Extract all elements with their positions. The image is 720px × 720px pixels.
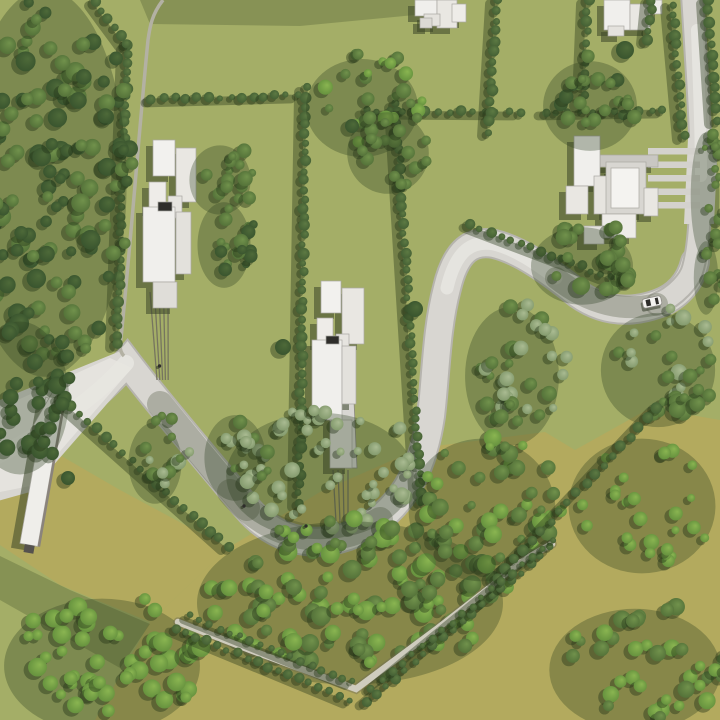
tree — [44, 421, 57, 434]
hedge-bush — [492, 6, 501, 15]
hedge-bush — [507, 237, 514, 244]
hedge-bush — [227, 631, 233, 637]
tree — [357, 145, 368, 156]
tree — [511, 507, 527, 523]
hedge-bush — [270, 90, 279, 99]
hedge-bush — [300, 186, 308, 194]
hedge-bush — [626, 433, 635, 442]
hedge-bush — [298, 316, 306, 324]
tree — [11, 244, 24, 257]
tree — [522, 404, 532, 414]
hedge-bush — [584, 27, 591, 34]
tree — [537, 506, 545, 514]
hedge-bush — [672, 50, 679, 57]
hedge-bush — [488, 58, 496, 66]
tree — [264, 503, 279, 518]
hedge-bush — [642, 412, 653, 423]
hedge-bush — [298, 219, 309, 230]
hedge-bush — [488, 45, 499, 56]
tree — [704, 204, 713, 213]
building-block — [342, 346, 356, 404]
tree — [233, 415, 247, 429]
tree — [622, 98, 634, 110]
hedge-bush — [420, 651, 426, 657]
building-block — [153, 282, 177, 308]
hedge-bush — [487, 66, 497, 76]
hedge-bush — [615, 440, 626, 451]
tree — [610, 490, 621, 501]
tree — [561, 111, 576, 126]
tree — [683, 369, 698, 384]
hedge-bush — [123, 68, 131, 76]
hedge-bush — [403, 294, 410, 301]
hedge-bush — [300, 155, 311, 166]
hedge-bush — [92, 422, 103, 433]
tree — [1, 154, 15, 168]
hedge-bush — [217, 95, 223, 101]
hedge-bush — [582, 8, 590, 16]
tree — [441, 449, 449, 457]
building-block — [415, 0, 437, 16]
hedge-bush — [487, 84, 499, 96]
tree — [98, 94, 115, 111]
tree — [572, 277, 590, 295]
hedge-bush — [122, 39, 131, 48]
tree — [494, 409, 509, 424]
slab-foot — [23, 544, 34, 554]
hedge-bush — [405, 338, 415, 348]
tree — [368, 442, 381, 455]
building-block — [644, 188, 658, 216]
hedge-bush — [214, 533, 223, 542]
tree — [650, 330, 661, 341]
tree — [687, 521, 701, 535]
tree — [116, 83, 132, 99]
hedge-bush — [259, 93, 268, 102]
hedge-bush — [412, 415, 420, 423]
hedge-bush — [485, 97, 495, 107]
tree — [401, 146, 414, 159]
hedge-bush — [672, 60, 681, 69]
tree — [566, 649, 580, 663]
tree — [97, 108, 112, 123]
hedge-bush — [338, 675, 346, 683]
tree — [539, 323, 552, 336]
hedge-bush — [111, 313, 122, 324]
tree — [392, 565, 408, 581]
tree — [257, 471, 267, 481]
tree — [167, 673, 186, 692]
hedge-bush — [298, 286, 307, 295]
tree — [698, 320, 712, 334]
hedge-bush — [670, 2, 677, 9]
tree — [325, 480, 335, 490]
hedge-bush — [237, 93, 247, 103]
hedge-bush — [336, 692, 344, 700]
tree — [494, 465, 509, 480]
tree — [176, 454, 185, 463]
tree — [378, 467, 389, 478]
tree — [626, 348, 636, 358]
hedge-bush — [497, 577, 506, 586]
building-block — [604, 0, 630, 30]
hedge-bush — [296, 657, 305, 666]
hedge-bush — [112, 296, 124, 308]
tree — [626, 614, 640, 628]
tree — [650, 645, 666, 661]
tree — [260, 445, 275, 460]
tree — [52, 625, 71, 644]
tree — [677, 681, 694, 698]
tree — [66, 246, 76, 256]
hedge-bush — [314, 683, 323, 692]
tree — [228, 152, 236, 160]
hedge-bush — [708, 60, 718, 70]
tree — [321, 438, 331, 448]
tree — [615, 257, 631, 273]
tree — [421, 136, 431, 146]
tree — [221, 433, 232, 444]
tree — [384, 520, 400, 536]
hedge-bush — [347, 698, 353, 704]
tree — [369, 480, 377, 488]
hedge-bush — [298, 324, 306, 332]
hedge-bush — [582, 478, 592, 488]
tree — [75, 631, 91, 647]
tree — [277, 491, 287, 501]
tree — [675, 643, 688, 656]
tree — [560, 351, 572, 363]
hedge-bush — [450, 620, 457, 627]
hedge-bush — [413, 431, 423, 441]
tree — [620, 273, 635, 288]
tree — [354, 447, 362, 455]
tree — [593, 641, 609, 657]
hedge-bush — [223, 647, 229, 653]
hedge-bush — [582, 39, 590, 47]
tree — [578, 75, 586, 83]
hedge-bush — [349, 678, 355, 684]
hedge-bush — [410, 388, 417, 395]
hedge-bush — [506, 108, 514, 116]
tree — [366, 133, 377, 144]
tree — [485, 442, 494, 451]
tree — [694, 680, 705, 691]
hedge-bush — [410, 379, 418, 387]
tree — [106, 245, 121, 260]
tree — [430, 572, 445, 587]
tree — [661, 694, 672, 705]
tree — [168, 433, 176, 441]
tree — [403, 470, 411, 478]
tree — [157, 467, 168, 478]
building-block — [143, 207, 175, 282]
tree — [166, 413, 178, 425]
hedge-bush — [519, 561, 525, 567]
tree — [547, 351, 558, 362]
tree — [70, 92, 87, 109]
tree — [207, 605, 223, 621]
hedge-bush — [526, 243, 534, 251]
tree — [219, 212, 233, 226]
hedge-bush — [414, 449, 424, 459]
hedge-bush — [187, 611, 194, 618]
tree — [485, 356, 498, 369]
tree — [406, 99, 415, 108]
hedge-bush — [550, 537, 556, 543]
hedge-bush — [204, 92, 215, 103]
tree — [700, 533, 709, 542]
tree — [687, 460, 697, 470]
tree — [64, 671, 78, 685]
hedge-bush — [303, 83, 311, 91]
tree — [140, 442, 152, 454]
hedge-bush — [408, 358, 417, 367]
hedge-bush — [702, 4, 712, 14]
tree — [243, 191, 256, 204]
hedge-bush — [217, 626, 224, 633]
hedge-bush — [671, 38, 681, 48]
tree — [702, 389, 716, 403]
hedge-bush — [286, 652, 293, 659]
tree — [343, 560, 362, 579]
tree — [215, 245, 227, 257]
tree — [599, 104, 611, 116]
tree — [364, 657, 376, 669]
hedge-bush — [680, 131, 689, 140]
hedge-bush — [116, 30, 127, 41]
tree — [556, 229, 573, 246]
hedge-bush — [297, 203, 308, 214]
hedge-bush — [180, 504, 188, 512]
tree — [314, 586, 328, 600]
hedge-bush — [301, 196, 309, 204]
tree — [288, 532, 300, 544]
tree — [577, 499, 588, 510]
hedge-bush — [295, 91, 302, 98]
tree — [711, 142, 720, 151]
hedge-bush — [253, 656, 263, 666]
tree — [43, 675, 58, 690]
hedge-bush — [518, 571, 524, 577]
tree — [622, 532, 633, 543]
hedge-bush — [548, 518, 556, 526]
hedge-bush — [601, 462, 608, 469]
hedge-bush — [478, 594, 484, 600]
hedge-bush — [398, 218, 409, 229]
hedge-bush — [283, 669, 293, 679]
hedge-bush — [644, 28, 651, 35]
tree — [51, 276, 63, 288]
building-block — [420, 18, 432, 28]
hedge-bush — [123, 76, 131, 84]
hedge-bush — [302, 149, 309, 156]
hedge-bush — [678, 101, 685, 108]
building-block — [452, 4, 466, 22]
hedge-bush — [299, 279, 306, 286]
tree — [661, 543, 674, 556]
tree — [75, 139, 87, 151]
tree — [497, 387, 510, 400]
hedge-bush — [298, 360, 307, 369]
tree — [14, 226, 28, 240]
tree — [581, 520, 593, 532]
tree — [318, 406, 332, 420]
hedge-bush — [675, 79, 685, 89]
hedge-bush — [389, 667, 398, 676]
tree — [55, 335, 70, 350]
tree — [301, 424, 312, 435]
tree — [185, 447, 194, 456]
tree — [603, 686, 620, 703]
hedge-bush — [470, 603, 477, 610]
tree — [58, 83, 72, 97]
hedge-bush — [703, 17, 715, 29]
tree — [628, 641, 643, 656]
tree — [146, 456, 154, 464]
tree — [6, 194, 19, 207]
hedge-bush — [539, 546, 545, 552]
hedge-bush — [233, 648, 242, 657]
tree — [201, 169, 213, 181]
hedge-bush — [399, 230, 406, 237]
tree — [421, 156, 431, 166]
hedge-bush — [298, 241, 305, 248]
tree — [551, 271, 561, 281]
hedge-bush — [403, 257, 412, 266]
tree — [432, 499, 449, 516]
tree — [336, 448, 344, 456]
specimen-tree — [61, 471, 75, 485]
tree — [99, 219, 112, 232]
building-block — [566, 186, 588, 214]
tree — [318, 80, 333, 95]
tree — [322, 572, 333, 583]
tree — [385, 57, 397, 69]
hedge-bush — [675, 72, 683, 80]
hedge-bush — [517, 108, 526, 117]
hedge-bush — [182, 629, 189, 636]
hedge-bush — [309, 662, 317, 670]
tree — [340, 69, 350, 79]
tree — [301, 634, 319, 652]
tree — [513, 341, 528, 356]
tree — [21, 93, 34, 106]
tree — [353, 605, 364, 616]
tree — [31, 14, 42, 25]
tree — [503, 299, 518, 314]
hedge-bush — [488, 585, 495, 592]
tree — [596, 624, 613, 641]
tree — [695, 661, 706, 672]
hedge-bush — [109, 440, 117, 448]
hedge-bush — [485, 129, 492, 136]
building-block — [153, 140, 175, 176]
hedge-bush — [302, 140, 309, 147]
tree — [541, 460, 556, 475]
tree — [63, 372, 75, 384]
tree — [660, 603, 674, 617]
tree — [150, 654, 168, 672]
hedge-bush — [589, 469, 600, 480]
tree — [43, 41, 57, 55]
specimen-tree — [275, 339, 291, 355]
tree — [330, 538, 340, 548]
tree — [353, 49, 364, 60]
tree — [235, 160, 245, 170]
hedge-bush — [499, 233, 506, 240]
hedge-bush — [658, 106, 666, 114]
tree — [139, 593, 151, 605]
tree — [614, 675, 626, 687]
specimen-tree — [345, 119, 359, 133]
tree — [43, 165, 56, 178]
hedge-bush — [408, 651, 414, 657]
tree — [63, 304, 80, 321]
tree — [393, 124, 406, 137]
tree — [274, 525, 284, 535]
hedge-bush — [124, 50, 133, 59]
hedge-bush — [97, 8, 104, 15]
hedge-bush — [298, 248, 310, 260]
hedge-bush — [111, 24, 119, 32]
hedge-bush — [493, 18, 500, 25]
tree — [27, 250, 39, 262]
hedge-bush — [299, 260, 306, 267]
tree — [61, 349, 75, 363]
hedge-bush — [518, 240, 525, 247]
aerial-site-plan-render — [0, 0, 720, 720]
tree — [581, 50, 594, 63]
tree — [557, 369, 568, 380]
tree — [505, 359, 514, 368]
hedge-bush — [123, 58, 133, 68]
hedge-bush — [263, 662, 273, 672]
tree — [627, 110, 641, 124]
hedge-bush — [647, 5, 657, 15]
tree — [10, 377, 23, 390]
tree — [331, 602, 344, 615]
hedge-bush — [563, 499, 570, 506]
tree — [40, 216, 52, 228]
tree — [380, 118, 389, 127]
tree — [240, 436, 252, 448]
tree — [59, 609, 73, 623]
hedge-bush — [676, 110, 686, 120]
driveway-strip — [648, 148, 700, 155]
hedge-bush — [237, 632, 243, 638]
tree — [499, 371, 514, 386]
tree — [422, 471, 433, 482]
building-block — [321, 281, 341, 313]
hedge-bush — [213, 641, 221, 649]
tree — [506, 400, 515, 409]
tree — [363, 111, 376, 124]
tree — [48, 108, 67, 127]
tree — [284, 462, 300, 478]
hedge-bush — [197, 517, 208, 528]
hedge-bush — [191, 92, 201, 102]
hedge-bush — [396, 201, 407, 212]
tree — [512, 415, 523, 426]
hedge-bush — [101, 432, 112, 443]
tree — [666, 351, 678, 363]
person — [158, 364, 161, 367]
tree — [180, 692, 191, 703]
tree — [361, 92, 374, 105]
building-block — [608, 26, 624, 36]
tree — [401, 581, 418, 598]
